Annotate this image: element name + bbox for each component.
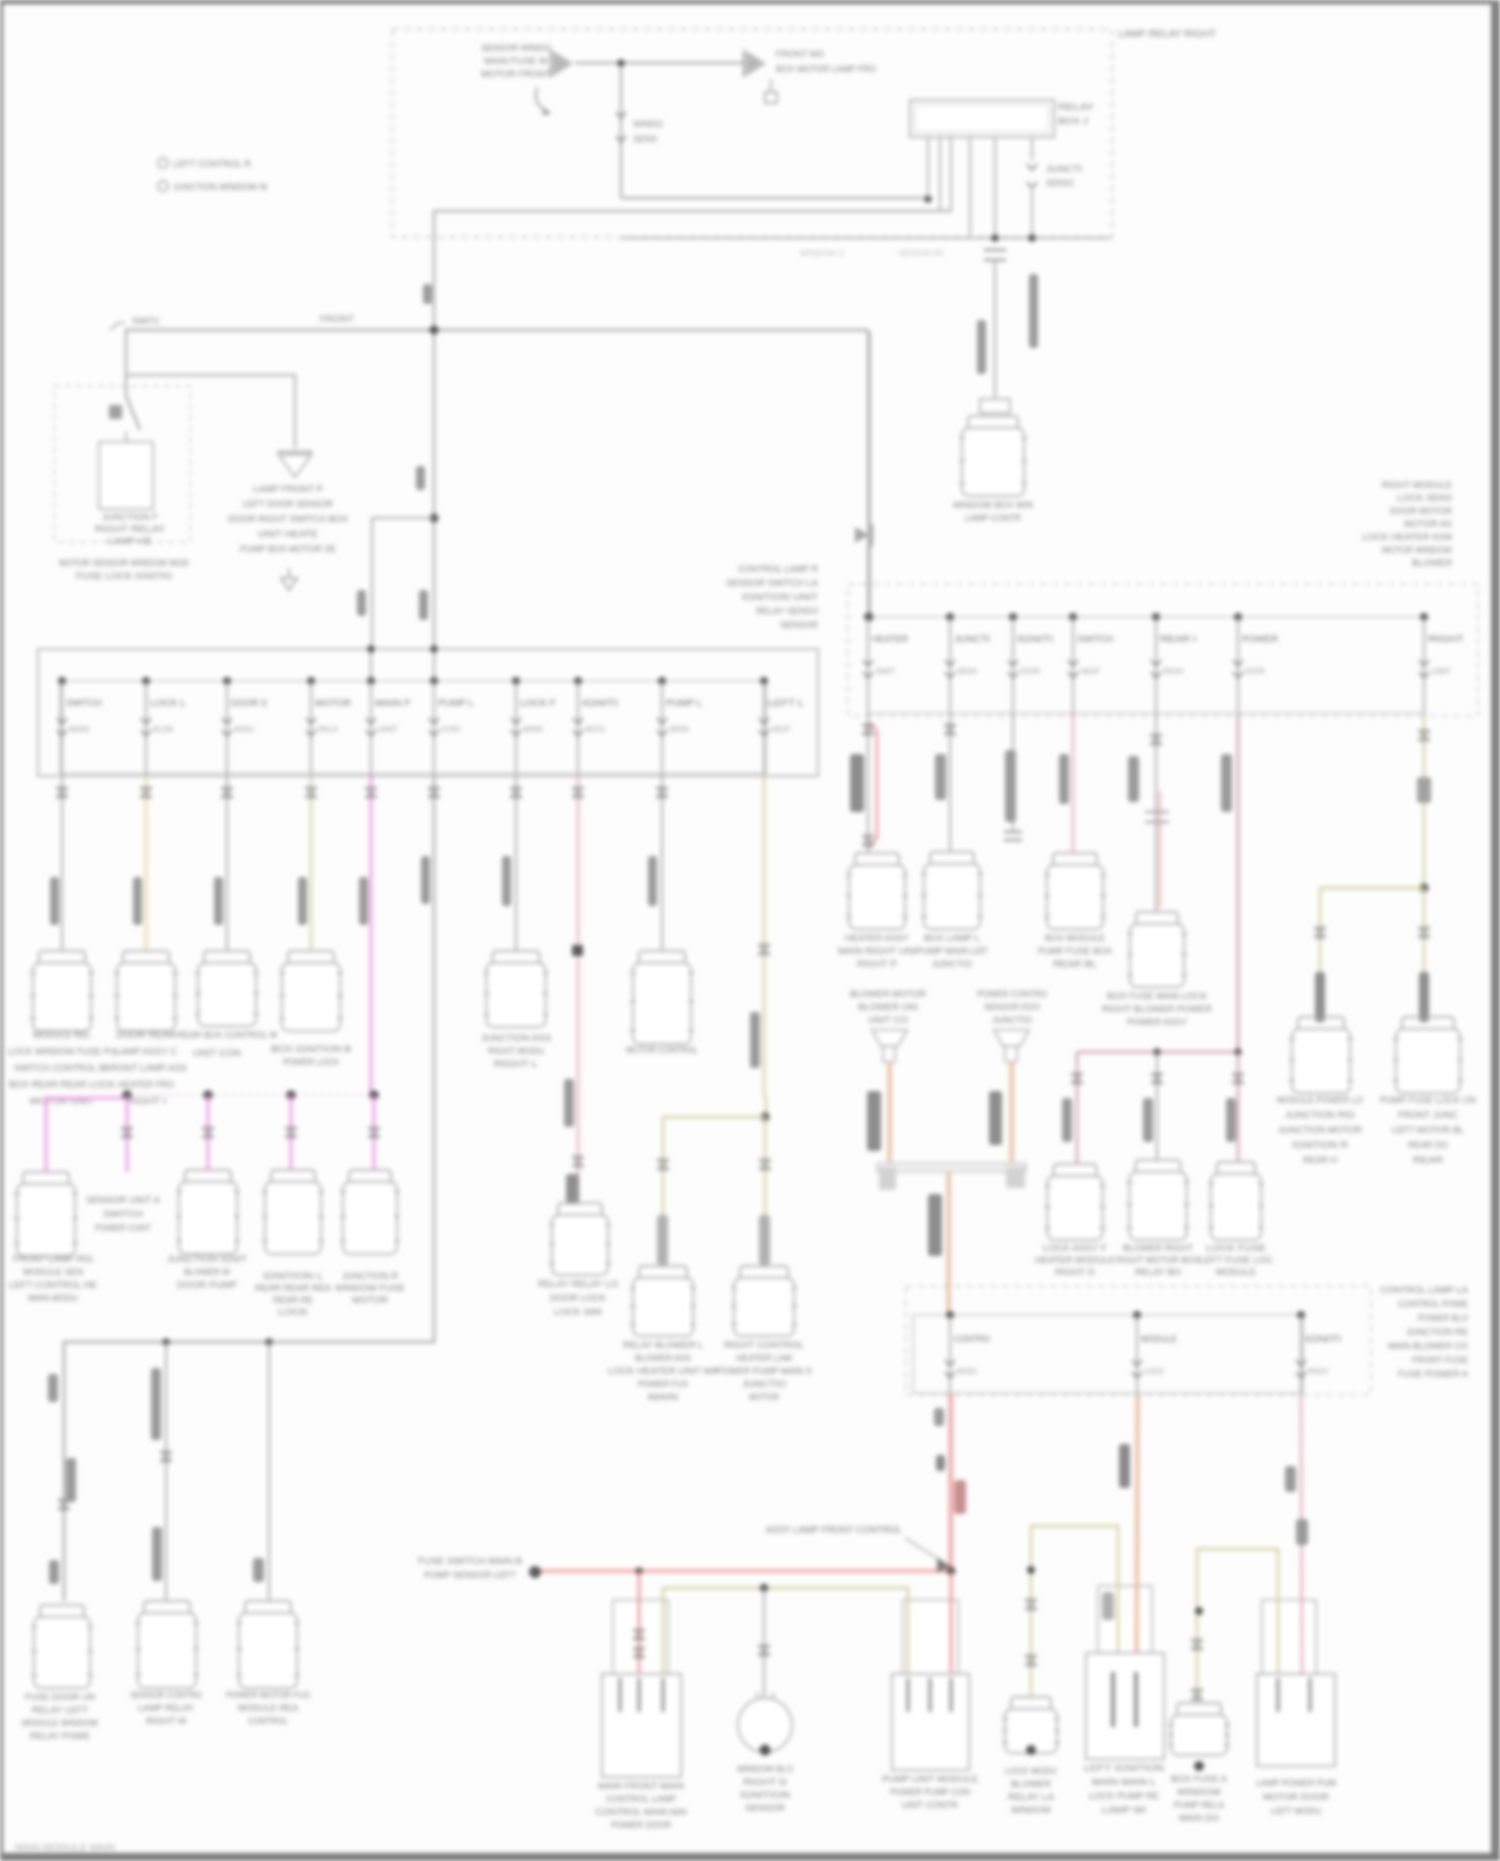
svg-text:JUNCTION R: JUNCTION R (342, 1271, 398, 1282)
svg-text:PUMP BOX MOTOR SE: PUMP BOX MOTOR SE (240, 544, 336, 555)
svg-text:PUMP L: PUMP L (438, 698, 474, 709)
svg-text:LAMP ASSY C: LAMP ASSY C (115, 1047, 177, 1058)
svg-text:JUNCTI: JUNCTI (1046, 164, 1082, 175)
svg-text:REAR DO: REAR DO (1408, 1140, 1448, 1151)
svg-text:POWER: POWER (1242, 634, 1278, 645)
svg-text:LAMP WI: LAMP WI (1102, 1805, 1146, 1816)
svg-text:BOX FUSE A: BOX FUSE A (1171, 1774, 1228, 1785)
svg-text:MOTOR CONTROL: MOTOR CONTROL (626, 1045, 698, 1056)
svg-text:MODULE: MODULE (1141, 1334, 1177, 1345)
svg-text:MODULE REL: MODULE REL (33, 1030, 91, 1041)
svg-text:LOCK MODU: LOCK MODU (1005, 1766, 1057, 1777)
svg-text:MAIN FUSE W: MAIN FUSE W (484, 56, 548, 67)
svg-text:SENSOR CONTRO: SENSOR CONTRO (130, 1690, 202, 1701)
svg-text:CONTROL: CONTROL (248, 1716, 288, 1727)
svg-text:FRONT: FRONT (320, 314, 355, 324)
svg-text:JUNCTION WINDOW M: JUNCTION WINDOW M (173, 182, 267, 193)
svg-text:LEFT MOTOR BL: LEFT MOTOR BL (1392, 1125, 1464, 1136)
svg-text:REAR BL: REAR BL (1053, 959, 1097, 970)
svg-text:RELAY BLOWER L: RELAY BLOWER L (623, 1340, 703, 1351)
svg-text:WINDOW: WINDOW (1011, 1805, 1051, 1816)
svg-text:IGNITION: IGNITION (740, 1790, 790, 1801)
svg-text:JUNCTION IGNIT: JUNCTION IGNIT (167, 1254, 247, 1265)
svg-text:LAMP HE: LAMP HE (108, 536, 152, 547)
svg-text:LOCK SENS: LOCK SENS (1397, 493, 1452, 504)
svg-text:IGNITI: IGNITI (1305, 1334, 1341, 1345)
svg-text:LOCK L: LOCK L (150, 698, 186, 709)
svg-text:BLOWER: BLOWER (1412, 558, 1452, 569)
svg-text:DOOR S: DOOR S (231, 698, 267, 709)
svg-text:BLOWER RIGHT: BLOWER RIGHT (1123, 1243, 1193, 1254)
svg-text:REAR BOX CONTROL M: REAR BOX CONTROL M (177, 1030, 277, 1041)
svg-text:MOTOR: MOTOR (749, 1392, 779, 1403)
svg-text:MODULE SEN: MODULE SEN (23, 1267, 83, 1278)
svg-text:RIGHT: RIGHT (1428, 634, 1464, 645)
svg-text:JUNCTION RE: JUNCTION RE (1406, 1327, 1468, 1338)
svg-text:BLOWER ASS: BLOWER ASS (635, 1353, 691, 1364)
svg-text:PUMP RELA: PUMP RELA (1174, 1800, 1225, 1811)
svg-text:MAIN DO: MAIN DO (1179, 1813, 1219, 1824)
svg-text:CONTROL POWE: CONTROL POWE (1398, 1299, 1468, 1310)
svg-text:JUNCTIO: JUNCTIO (742, 1379, 786, 1390)
svg-text:POWER CONT: POWER CONT (95, 1223, 151, 1234)
svg-text:BLOWER UNI: BLOWER UNI (858, 1002, 918, 1013)
svg-text:RIGHT CONTROL: RIGHT CONTROL (724, 1340, 804, 1351)
svg-text:RELAY SENSO: RELAY SENSO (756, 606, 818, 617)
svg-text:RIGH: RIGH (1163, 667, 1183, 676)
svg-text:SWITC: SWITC (132, 316, 160, 326)
svg-text:RELAY RELAY LO: RELAY RELAY LO (538, 1279, 618, 1290)
svg-text:HEATER: HEATER (872, 634, 908, 645)
svg-text:LAMP POWER PUM: LAMP POWER PUM (1256, 1778, 1336, 1789)
svg-text:POWER BLO: POWER BLO (1418, 1313, 1468, 1324)
svg-text:PUMP UNIT MODULE: PUMP UNIT MODULE (882, 1774, 978, 1785)
svg-text:POWER DOOR: POWER DOOR (611, 1820, 671, 1831)
svg-text:JUNCTIO: JUNCTIO (932, 959, 972, 970)
svg-text:MAIN MODULE MAIN: MAIN MODULE MAIN (15, 1843, 115, 1854)
svg-text:JUNCTION F: JUNCTION F (102, 512, 158, 523)
svg-text:SWITCH: SWITCH (103, 1209, 143, 1220)
svg-text:ASSY LAMP FRONT CONTROL: ASSY LAMP FRONT CONTROL (766, 1525, 902, 1536)
svg-text:BLOWER W: BLOWER W (184, 1267, 230, 1278)
svg-text:FUSE POWER A: FUSE POWER A (1398, 1369, 1469, 1380)
svg-text:MODULE POWER LO: MODULE POWER LO (1277, 1095, 1363, 1106)
svg-text:RIGHT I: RIGHT I (126, 1096, 166, 1107)
svg-text:JUNCTI: JUNCTI (954, 634, 990, 645)
svg-text:DOOR MOTOR: DOOR MOTOR (1390, 506, 1452, 517)
svg-text:CONTRO: CONTRO (954, 1334, 990, 1345)
svg-text:RIGHT MOTOR BOX: RIGHT MOTOR BOX (1116, 1255, 1201, 1266)
svg-text:IGNITI: IGNITI (1017, 634, 1053, 645)
svg-text:SWITCH: SWITCH (66, 698, 102, 709)
svg-text:BOX REAR REAR LOCK: BOX REAR REAR LOCK (9, 1080, 116, 1091)
svg-text:JUNCTION MOTOR: JUNCTION MOTOR (1278, 1125, 1362, 1136)
svg-text:FRONT FUSE: FRONT FUSE (1412, 1355, 1468, 1366)
svg-text:WIND: WIND (523, 725, 543, 734)
svg-text:DOOR RIGHT SWITCH BOX: DOOR RIGHT SWITCH BOX (228, 514, 349, 525)
svg-text:MAIN BLOWER CO: MAIN BLOWER CO (1388, 1341, 1468, 1352)
svg-text:SENS: SENS (957, 667, 977, 676)
svg-text:LOCK HEATER UNIT MA: LOCK HEATER UNIT MA (608, 1366, 719, 1377)
svg-text:SENSOR WINDO: SENSOR WINDO (481, 43, 551, 54)
svg-text:UNIT CONTR: UNIT CONTR (902, 1800, 958, 1811)
svg-text:WINDOW S: WINDOW S (800, 248, 844, 258)
svg-text:RIGHT M: RIGHT M (146, 1716, 186, 1727)
svg-text:JUNCTIO: JUNCTIO (992, 1015, 1032, 1026)
svg-text:LEFT FUSE LOC: LEFT FUSE LOC (1199, 1255, 1273, 1266)
svg-text:LOCK HEATER IGNI: LOCK HEATER IGNI (1362, 532, 1452, 543)
svg-text:UNIT HEATE: UNIT HEATE (258, 529, 318, 540)
svg-text:CONTROL LAMP LA: CONTROL LAMP LA (1380, 1285, 1469, 1296)
svg-text:WINDOW BLO: WINDOW BLO (737, 1764, 793, 1775)
svg-text:LEFT MODU: LEFT MODU (1271, 1806, 1321, 1817)
svg-text:LAMP RELAY RIGHT: LAMP RELAY RIGHT (1118, 29, 1216, 40)
svg-text:LOCK: LOCK (1144, 1367, 1165, 1376)
svg-text:UNIT: UNIT (378, 725, 398, 734)
svg-text:FRONT JUNC: FRONT JUNC (1398, 1110, 1458, 1121)
svg-text:MOTOR AS: MOTOR AS (1404, 519, 1452, 530)
svg-text:FRONT LAMP ASS: FRONT LAMP ASS (105, 1063, 187, 1074)
svg-text:BOX FUSE MAIN LOCK: BOX FUSE MAIN LOCK (1107, 991, 1208, 1002)
svg-text:SENSOR SWITCH LA: SENSOR SWITCH LA (726, 578, 819, 589)
svg-text:RIGHT MODULE: RIGHT MODULE (1382, 480, 1452, 491)
svg-text:POWER PUMP CON: POWER PUMP CON (890, 1787, 970, 1798)
svg-text:CONTROL LAMP: CONTROL LAMP (606, 1794, 676, 1805)
svg-text:SWITCH: SWITCH (1077, 634, 1113, 645)
svg-text:MOTOR: MOTOR (315, 698, 351, 709)
svg-text:LAMP CONTR: LAMP CONTR (965, 513, 1021, 524)
svg-text:SENSOR: SENSOR (780, 620, 818, 631)
svg-text:REAR H: REAR H (1303, 1155, 1337, 1166)
svg-text:PUMP FUSE LOCK UN: PUMP FUSE LOCK UN (1380, 1095, 1476, 1106)
svg-text:FUSE DOOR UN: FUSE DOOR UN (25, 1692, 95, 1703)
svg-text:POWER CONTRO: POWER CONTRO (977, 989, 1047, 1000)
svg-text:MAIN FRONT MAIN: MAIN FRONT MAIN (598, 1781, 684, 1792)
svg-text:RIGHT L: RIGHT L (494, 1059, 538, 1070)
svg-text:BOX MODULE: BOX MODULE (1045, 933, 1105, 944)
svg-text:SWITCH CONTROL BL: SWITCH CONTROL BL (14, 1063, 110, 1074)
svg-text:LOCK ASSY F: LOCK ASSY F (1043, 1243, 1107, 1254)
svg-text:BLOW: BLOW (153, 725, 173, 734)
svg-text:RIGHT P: RIGHT P (857, 959, 897, 970)
svg-text:LEFT CONTROL R: LEFT CONTROL R (173, 159, 251, 170)
svg-text:UNIT CON: UNIT CON (193, 1048, 241, 1059)
svg-text:LOCK FUSE: LOCK FUSE (1206, 1243, 1266, 1254)
svg-text:UNIT CO: UNIT CO (868, 1015, 908, 1026)
svg-text:MAIN: MAIN (69, 725, 89, 734)
svg-text:CONTROL LAMP R: CONTROL LAMP R (738, 564, 818, 575)
svg-text:LOCK F: LOCK F (520, 698, 556, 709)
svg-text:BOX IGNITION B: BOX IGNITION B (271, 1044, 351, 1055)
svg-text:POWER MOTOR FUS: POWER MOTOR FUS (226, 1690, 310, 1701)
svg-text:REAR I: REAR I (1160, 634, 1196, 645)
svg-text:RELAY LEFT: RELAY LEFT (32, 1705, 88, 1716)
svg-text:RIGHT BLOWER POWER: RIGHT BLOWER POWER (1102, 1004, 1212, 1015)
svg-text:JUNCTION RIG: JUNCTION RIG (1285, 1110, 1355, 1121)
svg-text:FUSE LOCK IGNITIO: FUSE LOCK IGNITIO (76, 571, 172, 582)
svg-text:PUMP L: PUMP L (666, 698, 702, 709)
svg-text:MOTOR: MOTOR (352, 1295, 388, 1306)
svg-text:LOCK: LOCK (278, 1307, 309, 1318)
svg-text:IGNITI: IGNITI (582, 698, 618, 709)
svg-text:HEATER FRO: HEATER FRO (118, 1080, 174, 1091)
svg-text:SENSOR RE: SENSOR RE (898, 248, 944, 258)
svg-text:MOTO: MOTO (585, 725, 605, 734)
svg-text:MOTOR FRONT: MOTOR FRONT (481, 69, 551, 80)
svg-text:HEAT: HEAT (1080, 667, 1100, 676)
svg-text:LEFT L: LEFT L (768, 698, 804, 709)
svg-text:PUMP FUSE BOX: PUMP FUSE BOX (1038, 946, 1113, 957)
svg-text:FRONT MO: FRONT MO (776, 49, 824, 60)
svg-text:LEFT CONTROL HE: LEFT CONTROL HE (9, 1280, 97, 1291)
svg-text:JUNCTION ASS: JUNCTION ASS (481, 1033, 551, 1044)
svg-text:LOCK PUMP RE: LOCK PUMP RE (1089, 1791, 1159, 1802)
svg-text:CONTROL MAIN MAI: CONTROL MAIN MAI (595, 1807, 687, 1818)
svg-text:POWER LOCK: POWER LOCK (283, 1057, 340, 1068)
svg-text:HEATER ASSY: HEATER ASSY (845, 933, 910, 944)
svg-text:RIGHT D: RIGHT D (1055, 1267, 1095, 1278)
svg-text:RELAY: RELAY (1058, 102, 1095, 113)
svg-text:MAIN F: MAIN F (375, 698, 411, 709)
svg-text:MODULE WINDOW: MODULE WINDOW (22, 1718, 98, 1729)
svg-text:UNIT: UNIT (1431, 667, 1451, 676)
svg-text:RIGHT MODU: RIGHT MODU (488, 1046, 544, 1057)
svg-text:SENSO: SENSO (1046, 178, 1074, 189)
svg-text:LEFT DOOR SENSOR: LEFT DOOR SENSOR (243, 499, 333, 510)
svg-text:LAMP RELAY: LAMP RELAY (138, 1703, 195, 1714)
svg-text:FUSE SWITCH MAIN B: FUSE SWITCH MAIN B (418, 1556, 522, 1567)
svg-text:REAR RE: REAR RE (273, 1295, 313, 1306)
svg-text:RELAY LA: RELAY LA (1008, 1792, 1055, 1803)
svg-text:RIGHT RELAY: RIGHT RELAY (95, 524, 166, 535)
svg-text:MOTOR DOOR: MOTOR DOOR (1263, 1792, 1329, 1803)
svg-text:POWER FUS: POWER FUS (638, 1379, 688, 1390)
svg-text:MAIN: MAIN (648, 1392, 678, 1403)
svg-text:IGNITION R: IGNITION R (1292, 1140, 1348, 1151)
svg-text:BLOWER: BLOWER (1011, 1779, 1051, 1790)
svg-text:LEFT IGNITION: LEFT IGNITION (1084, 1763, 1164, 1774)
svg-text:MOTOR SENSOR WINDOW MOD: MOTOR SENSOR WINDOW MOD (59, 558, 189, 569)
svg-text:DOOR PUMP: DOOR PUMP (177, 1280, 237, 1291)
svg-text:SENS: SENS (669, 725, 689, 734)
svg-text:RELA: RELA (318, 725, 339, 734)
svg-text:MODULE REA: MODULE REA (238, 1703, 299, 1714)
svg-text:BOX LAMP L: BOX LAMP L (924, 933, 980, 944)
svg-text:WINDOW FUSE: WINDOW FUSE (335, 1283, 405, 1294)
svg-text:MAIN MODU: MAIN MODU (28, 1293, 78, 1304)
svg-text:DOOR REAR: DOOR REAR (116, 1030, 176, 1041)
svg-text:POWER PUMP MAIN S: POWER PUMP MAIN S (716, 1366, 812, 1377)
svg-text:PUMP SENSOR LEFT: PUMP SENSOR LEFT (424, 1570, 516, 1581)
svg-text:RIGHT D: RIGHT D (743, 1777, 787, 1788)
svg-text:BLOWER MOTOR: BLOWER MOTOR (850, 989, 926, 1000)
svg-text:SENSOR UNIT A: SENSOR UNIT A (86, 1195, 161, 1206)
svg-text:MODU: MODU (234, 725, 254, 734)
svg-text:LOCK WINDOW FUSE PU: LOCK WINDOW FUSE PU (8, 1047, 116, 1058)
svg-text:BOX MOTOR LAMP FRO: BOX MOTOR LAMP FRO (776, 64, 876, 75)
svg-text:IGNITION L: IGNITION L (263, 1271, 323, 1282)
svg-text:CONT: CONT (441, 725, 461, 734)
svg-text:MAIN MAIN L: MAIN MAIN L (1092, 1777, 1156, 1788)
svg-text:BOX J: BOX J (1058, 116, 1088, 127)
svg-text:HEATER MODULE: HEATER MODULE (1035, 1255, 1115, 1266)
svg-text:RELAY BO: RELAY BO (1135, 1267, 1181, 1278)
svg-text:LOCK SWI: LOCK SWI (554, 1307, 602, 1318)
svg-text:HEAT: HEAT (771, 725, 791, 734)
svg-text:SENSOR: SENSOR (745, 1803, 785, 1814)
svg-text:REAR REAR REA: REAR REAR REA (255, 1283, 332, 1294)
svg-text:DOOR: DOOR (1020, 667, 1040, 676)
svg-text:IGNITION UNIT: IGNITION UNIT (742, 592, 818, 603)
svg-text:MODU: MODU (957, 1367, 977, 1376)
svg-text:RELAY POWE: RELAY POWE (30, 1731, 90, 1742)
svg-text:DOOR LOCK: DOOR LOCK (550, 1293, 607, 1304)
svg-text:HEATER LAM: HEATER LAM (736, 1353, 792, 1364)
svg-text:POWER ASSY: POWER ASSY (1127, 1017, 1188, 1028)
svg-text:PUMP MAIN LEF: PUMP MAIN LEF (916, 946, 988, 957)
svg-text:RIGH: RIGH (1308, 1367, 1328, 1376)
svg-text:WINDOW BOX WIN: WINDOW BOX WIN (953, 500, 1033, 511)
svg-text:FRONT LAMP RIG: FRONT LAMP RIG (13, 1254, 93, 1265)
svg-text:MAIN RIGHT UNI: MAIN RIGHT UNI (838, 946, 916, 957)
svg-text:WINDOW: WINDOW (1177, 1787, 1221, 1798)
svg-text:LAMP FRONT P: LAMP FRONT P (253, 484, 323, 495)
svg-text:REAR: REAR (1413, 1155, 1443, 1166)
svg-text:WINDO: WINDO (633, 119, 663, 130)
svg-text:MOTOR WINDOW: MOTOR WINDOW (1382, 545, 1452, 556)
svg-text:DOOR: DOOR (1245, 667, 1265, 676)
svg-text:SWIT: SWIT (875, 667, 895, 676)
svg-text:SENSOR DOO: SENSOR DOO (984, 1002, 1040, 1013)
svg-text:MODULE: MODULE (1216, 1267, 1256, 1278)
svg-text:SENS: SENS (633, 134, 657, 145)
